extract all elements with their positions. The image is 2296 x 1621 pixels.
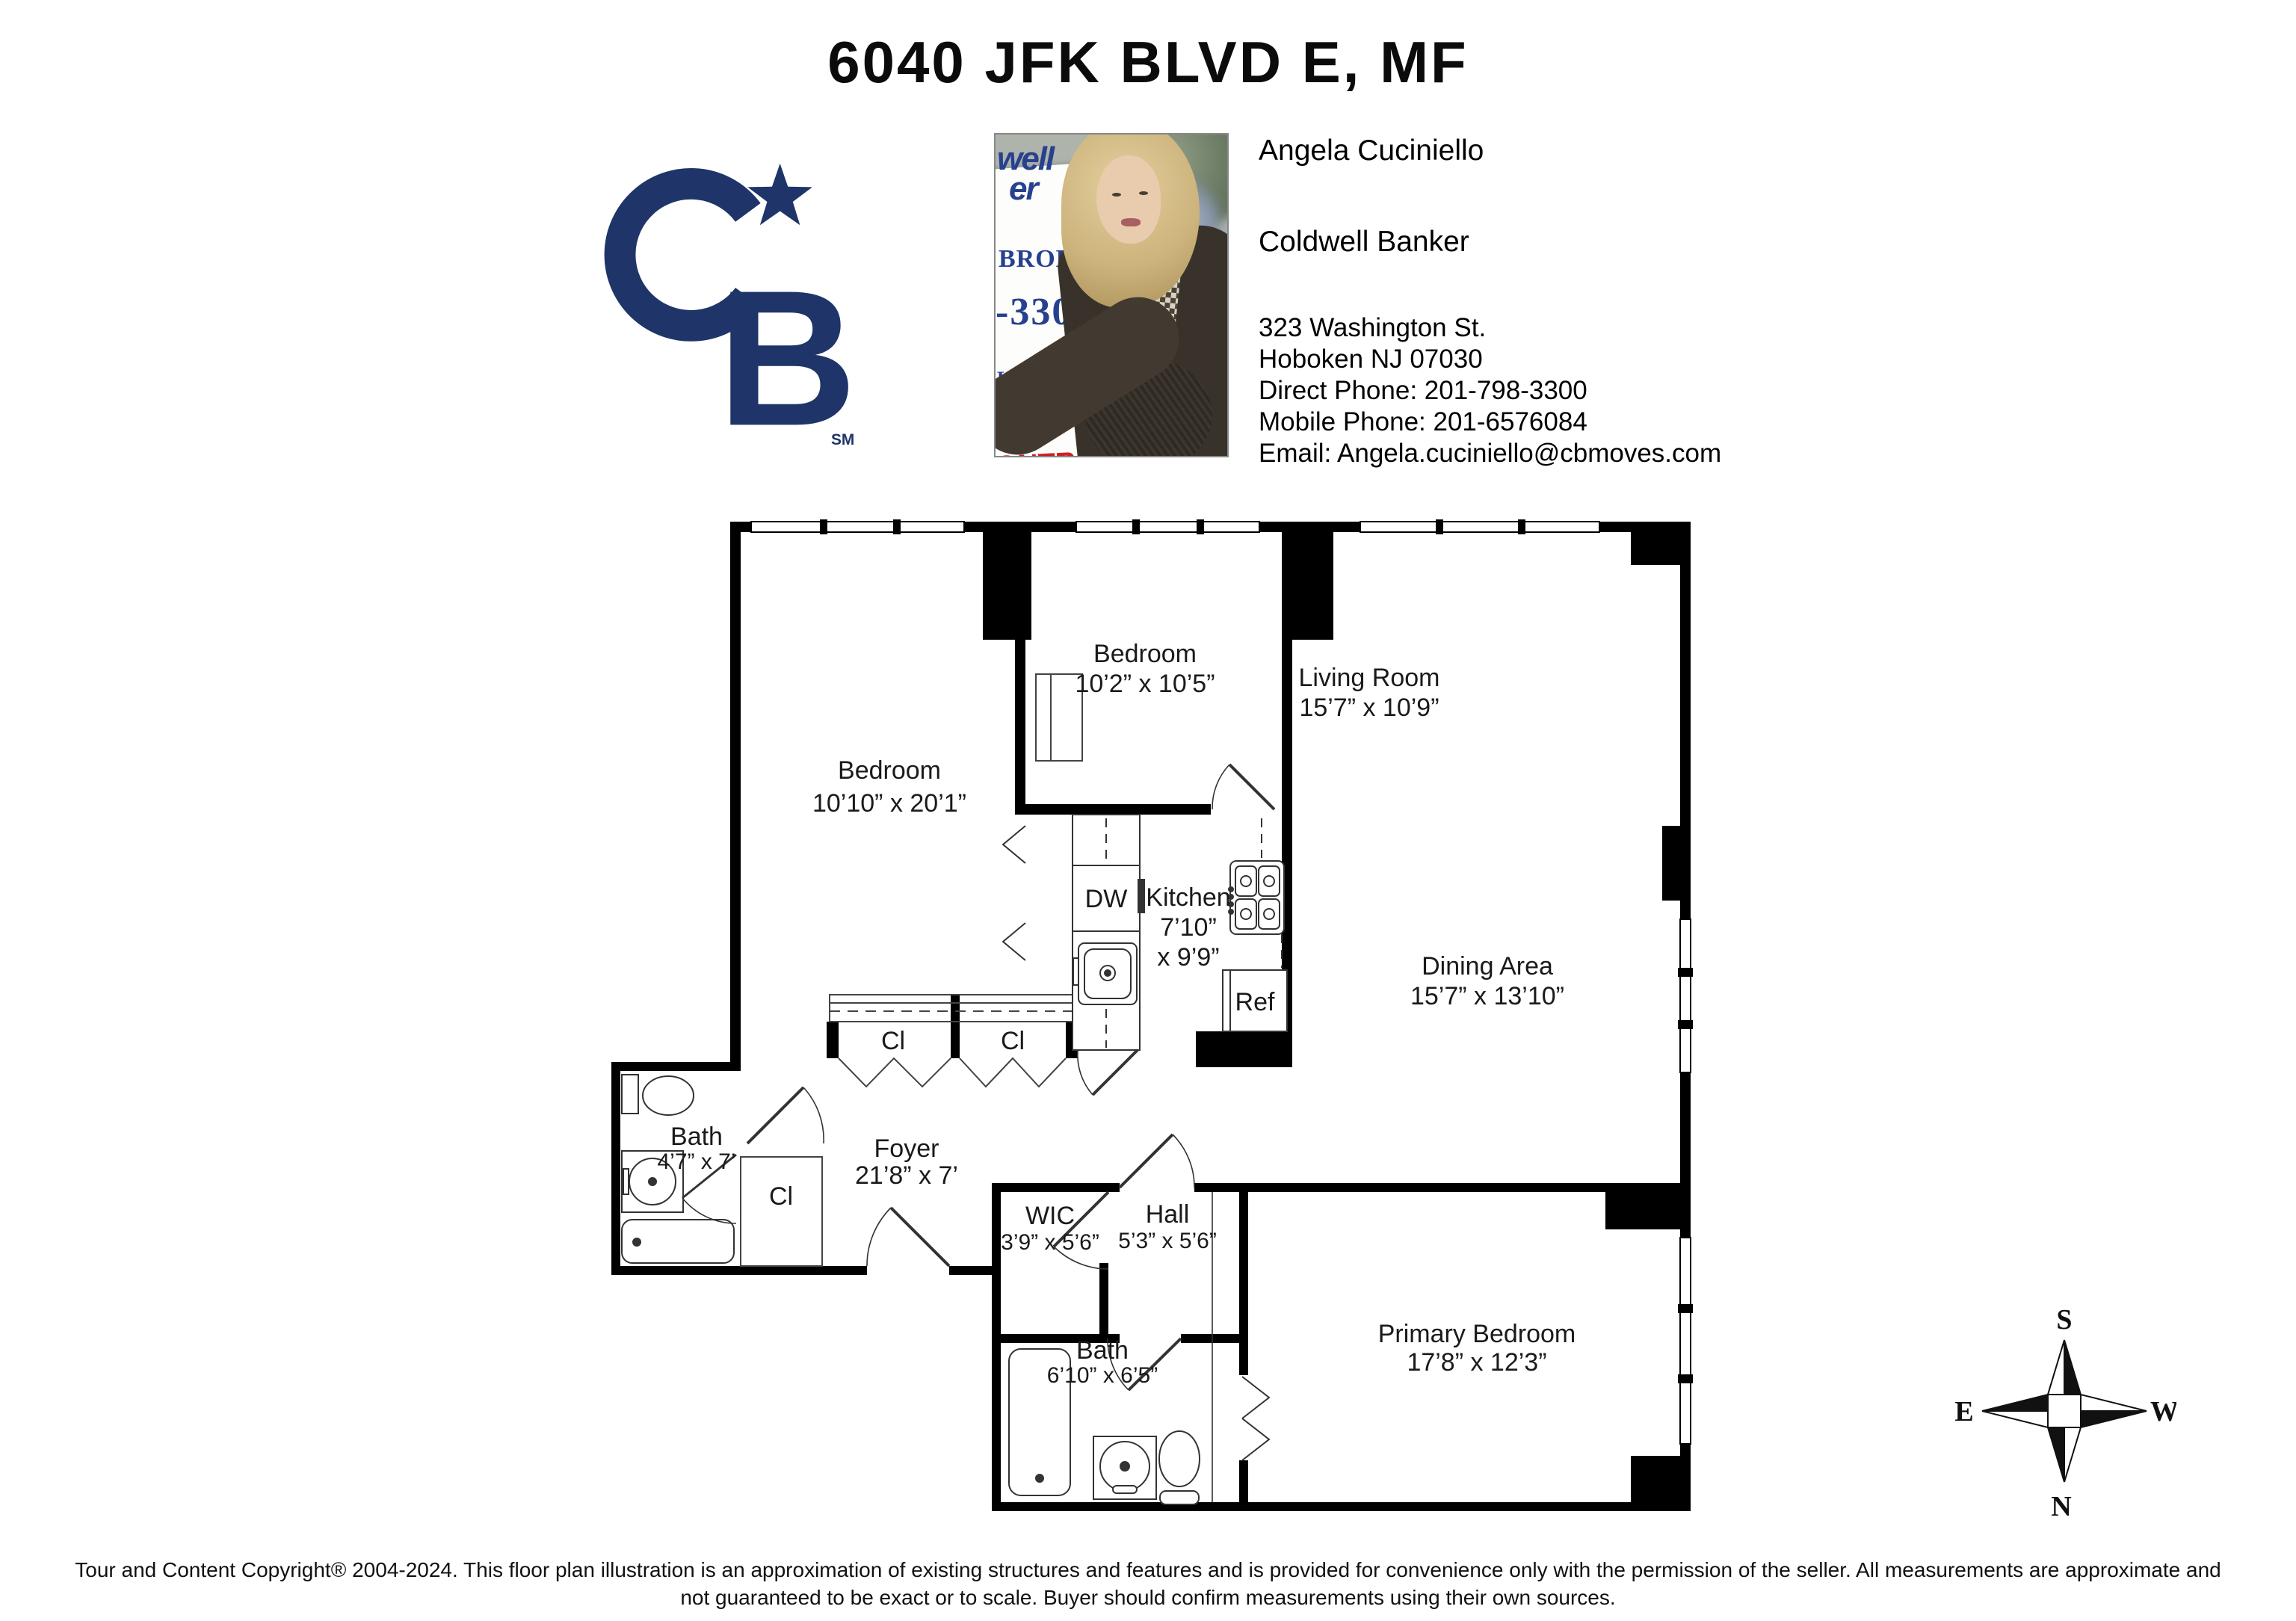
copyright-footer: Tour and Content Copyright® 2004-2024. T…: [0, 1556, 2296, 1611]
logo-sm-mark: SM: [831, 431, 854, 448]
room-label-foyer: Foyer: [874, 1134, 939, 1163]
floorplan: Bedroom 10’10” x 20’1” Bedroom 10’2” x 1…: [605, 516, 1741, 1547]
room-dims-bath2: 6’10” x 6’5”: [1047, 1363, 1158, 1388]
compass-east-label: E: [1954, 1396, 1973, 1427]
compass-star-icon: [1982, 1340, 2147, 1482]
agent-address-line2: Hoboken NJ 07030: [1259, 344, 1827, 375]
flyer-page: 6040 JFK BLVD E, MF B SM well er BROKER …: [0, 0, 2296, 1621]
room-dims-living: 15’7” x 10’9”: [1299, 694, 1439, 722]
agent-email: Email: Angela.cuciniello@cbmoves.com: [1259, 438, 1827, 469]
photo-eye: [1112, 193, 1121, 197]
room-dims-foyer: 21’8” x 7’: [855, 1161, 958, 1190]
footer-line1: Tour and Content Copyright® 2004-2024. T…: [0, 1556, 2296, 1584]
room-label-bedroom1: Bedroom: [838, 756, 941, 785]
coldwell-banker-logo: B SM: [575, 142, 860, 463]
compass-west-label: W: [2150, 1396, 2176, 1427]
dishwasher-label: DW: [1085, 885, 1128, 913]
room-dims-kitchen-1: 7’10”: [1160, 913, 1217, 942]
room-dims-bedroom1: 10’10” x 20’1”: [812, 789, 966, 818]
room-label-bath1: Bath: [670, 1123, 723, 1151]
refrigerator-label: Ref: [1235, 988, 1275, 1016]
footer-line2: not guaranteed to be exact or to scale. …: [0, 1584, 2296, 1611]
photo-face: [1096, 155, 1161, 244]
room-dims-wic: 3’9” x 5’6”: [1001, 1230, 1099, 1255]
room-label-hall: Hall: [1146, 1200, 1190, 1229]
logo-star-icon: [747, 164, 812, 225]
room-dims-bath1: 4’7” x 7’: [657, 1149, 735, 1174]
doors: [682, 765, 1274, 1502]
sign-text-fragment: er: [1009, 170, 1037, 208]
agent-info: Angela Cuciniello Coldwell Banker 323 Wa…: [1259, 135, 1827, 469]
agent-name: Angela Cuciniello: [1259, 135, 1827, 167]
compass-north-label: N: [2051, 1491, 2071, 1522]
room-dims-dining: 15’7” x 13’10”: [1410, 982, 1564, 1010]
room-dims-bedroom2: 10’2” x 10’5”: [1075, 670, 1215, 698]
room-dims-hall: 5’3” x 5’6”: [1118, 1229, 1217, 1253]
agent-mobile-phone: Mobile Phone: 201-6576084: [1259, 407, 1827, 438]
room-label-bedroom2: Bedroom: [1093, 640, 1197, 668]
agent-photo: well er BROKER -3300 LA CUCINIE 657-608 …: [994, 133, 1229, 457]
agent-direct-phone: Direct Phone: 201-798-3300: [1259, 375, 1827, 407]
compass-rose: S N W E: [1952, 1299, 2176, 1523]
room-label-bath2: Bath: [1076, 1336, 1129, 1365]
closet-label-foyer: Cl: [769, 1182, 793, 1211]
room-dims-primary: 17’8” x 12’3”: [1407, 1348, 1546, 1377]
agent-company: Coldwell Banker: [1259, 226, 1827, 259]
room-dims-kitchen-2: x 9’9”: [1157, 943, 1219, 972]
compass-south-label: S: [2056, 1304, 2072, 1336]
photo-lips: [1121, 218, 1141, 226]
page-title: 6040 JFK BLVD E, MF: [0, 28, 2296, 96]
agent-address-line1: 323 Washington St.: [1259, 312, 1827, 344]
room-label-primary: Primary Bedroom: [1378, 1320, 1576, 1348]
closet-label-1: Cl: [881, 1027, 905, 1055]
room-label-wic: WIC: [1025, 1202, 1075, 1230]
closet-label-2: Cl: [1001, 1027, 1025, 1055]
room-label-dining: Dining Area: [1422, 952, 1553, 981]
photo-eye: [1139, 191, 1148, 195]
room-label-kitchen: Kitchen: [1146, 883, 1230, 912]
room-label-living: Living Room: [1299, 664, 1440, 692]
